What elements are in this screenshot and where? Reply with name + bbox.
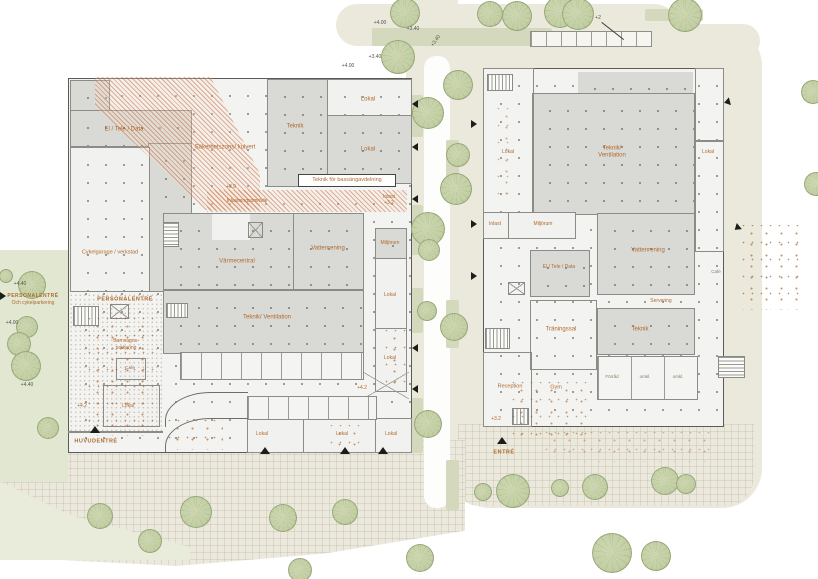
scatter-dots	[545, 432, 715, 462]
room-label-lokal-s2: Lokal	[336, 431, 348, 437]
tree	[11, 351, 41, 381]
room-label-teknik-ventilation-left: Teknik/ Ventilation	[243, 314, 291, 322]
tree	[417, 301, 437, 321]
door-arrow-icon	[260, 447, 270, 454]
level-label-42b: +4.2	[357, 385, 367, 391]
varmecentral-notch	[212, 214, 250, 240]
door-arrow-icon	[471, 120, 477, 128]
elevation-label: +4.40	[21, 382, 34, 388]
room-label-cykelgarage: Cykelgarage / verkstad	[82, 250, 138, 257]
elevation-label: +3.40	[407, 26, 420, 32]
stairs	[487, 74, 513, 91]
room-label-miljorum-left: Miljörum	[381, 240, 400, 246]
label-huvudentre: HUVUDENTRÉ	[74, 439, 117, 446]
tree	[332, 499, 358, 525]
tree	[446, 143, 470, 167]
exterior-stairs-east	[718, 356, 745, 378]
label-sakerhetszon: Säkerhetszons/ kulvert	[195, 144, 256, 152]
elevation-label: +4.00	[6, 320, 19, 326]
room-label-lokal-east1: Lokal	[384, 292, 396, 298]
door-arrow-icon	[471, 272, 477, 280]
tree	[641, 541, 671, 571]
label-personalentre-site-2: Och cykelparkering	[12, 300, 55, 306]
level-label-42a: +4.2	[77, 403, 87, 409]
entre-arrow-icon	[497, 437, 507, 444]
huvudentre-arrow-icon	[90, 426, 100, 433]
room-label-lokal-east2: Lokal	[384, 355, 396, 361]
room-label-lokal-east: Lokal	[702, 149, 714, 155]
room-label-teknik-left: Teknik	[286, 123, 303, 131]
elevation-label: +4.00	[374, 20, 387, 26]
tree	[676, 474, 696, 494]
room-label-gym: Gym	[550, 385, 562, 392]
tree	[582, 474, 608, 500]
tree	[418, 239, 440, 261]
label-servering: Servering	[650, 298, 671, 304]
room-label-vattenrening-left: Vattenrening	[311, 245, 345, 253]
door-arrow-icon	[412, 143, 418, 151]
tree	[474, 483, 492, 501]
room-top-east	[695, 68, 724, 142]
level-label-32-right: +3.2	[491, 416, 501, 422]
tree	[381, 40, 415, 74]
tree	[443, 70, 473, 100]
planting-strip	[446, 460, 459, 510]
room-label-omkl-1: omkl.	[640, 374, 651, 380]
scatter-dots	[742, 225, 802, 310]
stairs	[166, 303, 188, 318]
scatter-dots	[497, 108, 513, 203]
tree	[440, 173, 472, 205]
tree	[496, 474, 530, 508]
tree	[804, 172, 818, 196]
room-label-lokal-top: Lokal	[361, 96, 375, 104]
room-label-vattenrening-right: Vattenrening	[631, 247, 665, 255]
tree	[651, 467, 679, 495]
label-personalentre-site-1: PERSONALENTRÉ	[7, 293, 58, 299]
label-inlast-level: +3.2	[384, 200, 394, 206]
tree	[592, 533, 632, 573]
door-arrow-icon	[471, 220, 477, 228]
stairs	[485, 328, 510, 349]
tree	[87, 503, 113, 529]
level-label-39: +3.9	[226, 184, 236, 190]
room-label-forrad: Förråd	[605, 374, 618, 380]
stall-row-mid	[180, 352, 364, 380]
room-label-cafe-right: Cafe	[711, 269, 721, 275]
tree	[551, 479, 569, 497]
room-lokal-east-right-bldg	[695, 140, 724, 252]
label-barnvagns-1: Barnvagns-	[113, 338, 139, 344]
stairs	[163, 222, 179, 247]
park-entrance-arrow-icon	[0, 292, 6, 300]
room-label-traningssal: Träningssal	[546, 326, 577, 334]
room-traningssal	[530, 300, 597, 370]
elevation-label: +3.40	[369, 54, 382, 60]
room-label-teknik-ventilation-right-2: Ventilation	[598, 152, 626, 160]
room-label-lokal-hall: Lokal	[122, 403, 134, 409]
room-label-inlast-right: Inlast	[489, 221, 501, 227]
room-label-miljorum-right: Miljörum	[534, 221, 553, 227]
room-label-teknik-bassang: Teknik för bassängavdelning	[298, 174, 396, 187]
elevator	[110, 304, 129, 319]
label-personalentre-inner: PERSONALENTRÉ	[97, 297, 153, 304]
label-barnvagns-2: parkering	[116, 345, 137, 351]
stall-row-south	[247, 396, 377, 420]
label-inlastningsomrade: Inlastningsområde	[227, 198, 268, 204]
room-el-tele-data-right	[530, 250, 590, 297]
site-plan: Teknik för bassängavdelning	[0, 0, 818, 579]
elevation-label: +4.40	[14, 281, 27, 287]
room-label-varmecentral: Värmecentral	[219, 258, 255, 266]
room-label-el-tele-data: El / Tele / Data	[105, 126, 144, 134]
room-label-reception: Reception	[498, 384, 523, 391]
tree	[414, 410, 442, 438]
scatter-dots	[88, 318, 154, 436]
room-label-cafe-left: Cafe	[125, 365, 135, 371]
room-label-lokal-top2: Lokal	[361, 146, 375, 154]
tree	[288, 558, 312, 579]
room-label-el-tele-data-right: El / Tele / Data	[543, 264, 575, 270]
elevator	[248, 222, 263, 238]
room-teknik-ventilation-left	[163, 290, 364, 354]
tree	[440, 313, 468, 341]
tree	[180, 496, 212, 528]
door-arrow-icon	[412, 100, 418, 108]
room-teknik-left	[267, 79, 329, 187]
room-cykelgarage	[70, 147, 150, 292]
elevation-label-bike: +2	[595, 15, 601, 21]
room-label-omkl-2: omkl.	[673, 374, 684, 380]
label-entre: ENTRÉ	[493, 450, 514, 457]
door-arrow-icon	[340, 447, 350, 454]
door-arrow-icon	[378, 447, 388, 454]
tree	[801, 80, 818, 104]
tree	[406, 544, 434, 572]
room-label-lokal-s1: Lokal	[256, 431, 268, 437]
room-label-lokal-s3: Lokal	[385, 431, 397, 437]
bike-racks	[530, 31, 652, 47]
elevator	[508, 282, 525, 295]
tree	[37, 417, 59, 439]
door-arrow-icon	[412, 344, 418, 352]
scatter-dots	[168, 420, 223, 450]
tree	[477, 1, 503, 27]
elevation-label: +4.00	[342, 63, 355, 69]
tree	[269, 504, 297, 532]
tree	[502, 1, 532, 31]
room-label-teknik-right: Teknik	[631, 326, 648, 334]
door-arrow-icon	[412, 195, 418, 203]
door-arrow-icon	[412, 385, 418, 393]
tree	[138, 529, 162, 553]
room-label-lokal-west: Lokal	[502, 149, 514, 155]
